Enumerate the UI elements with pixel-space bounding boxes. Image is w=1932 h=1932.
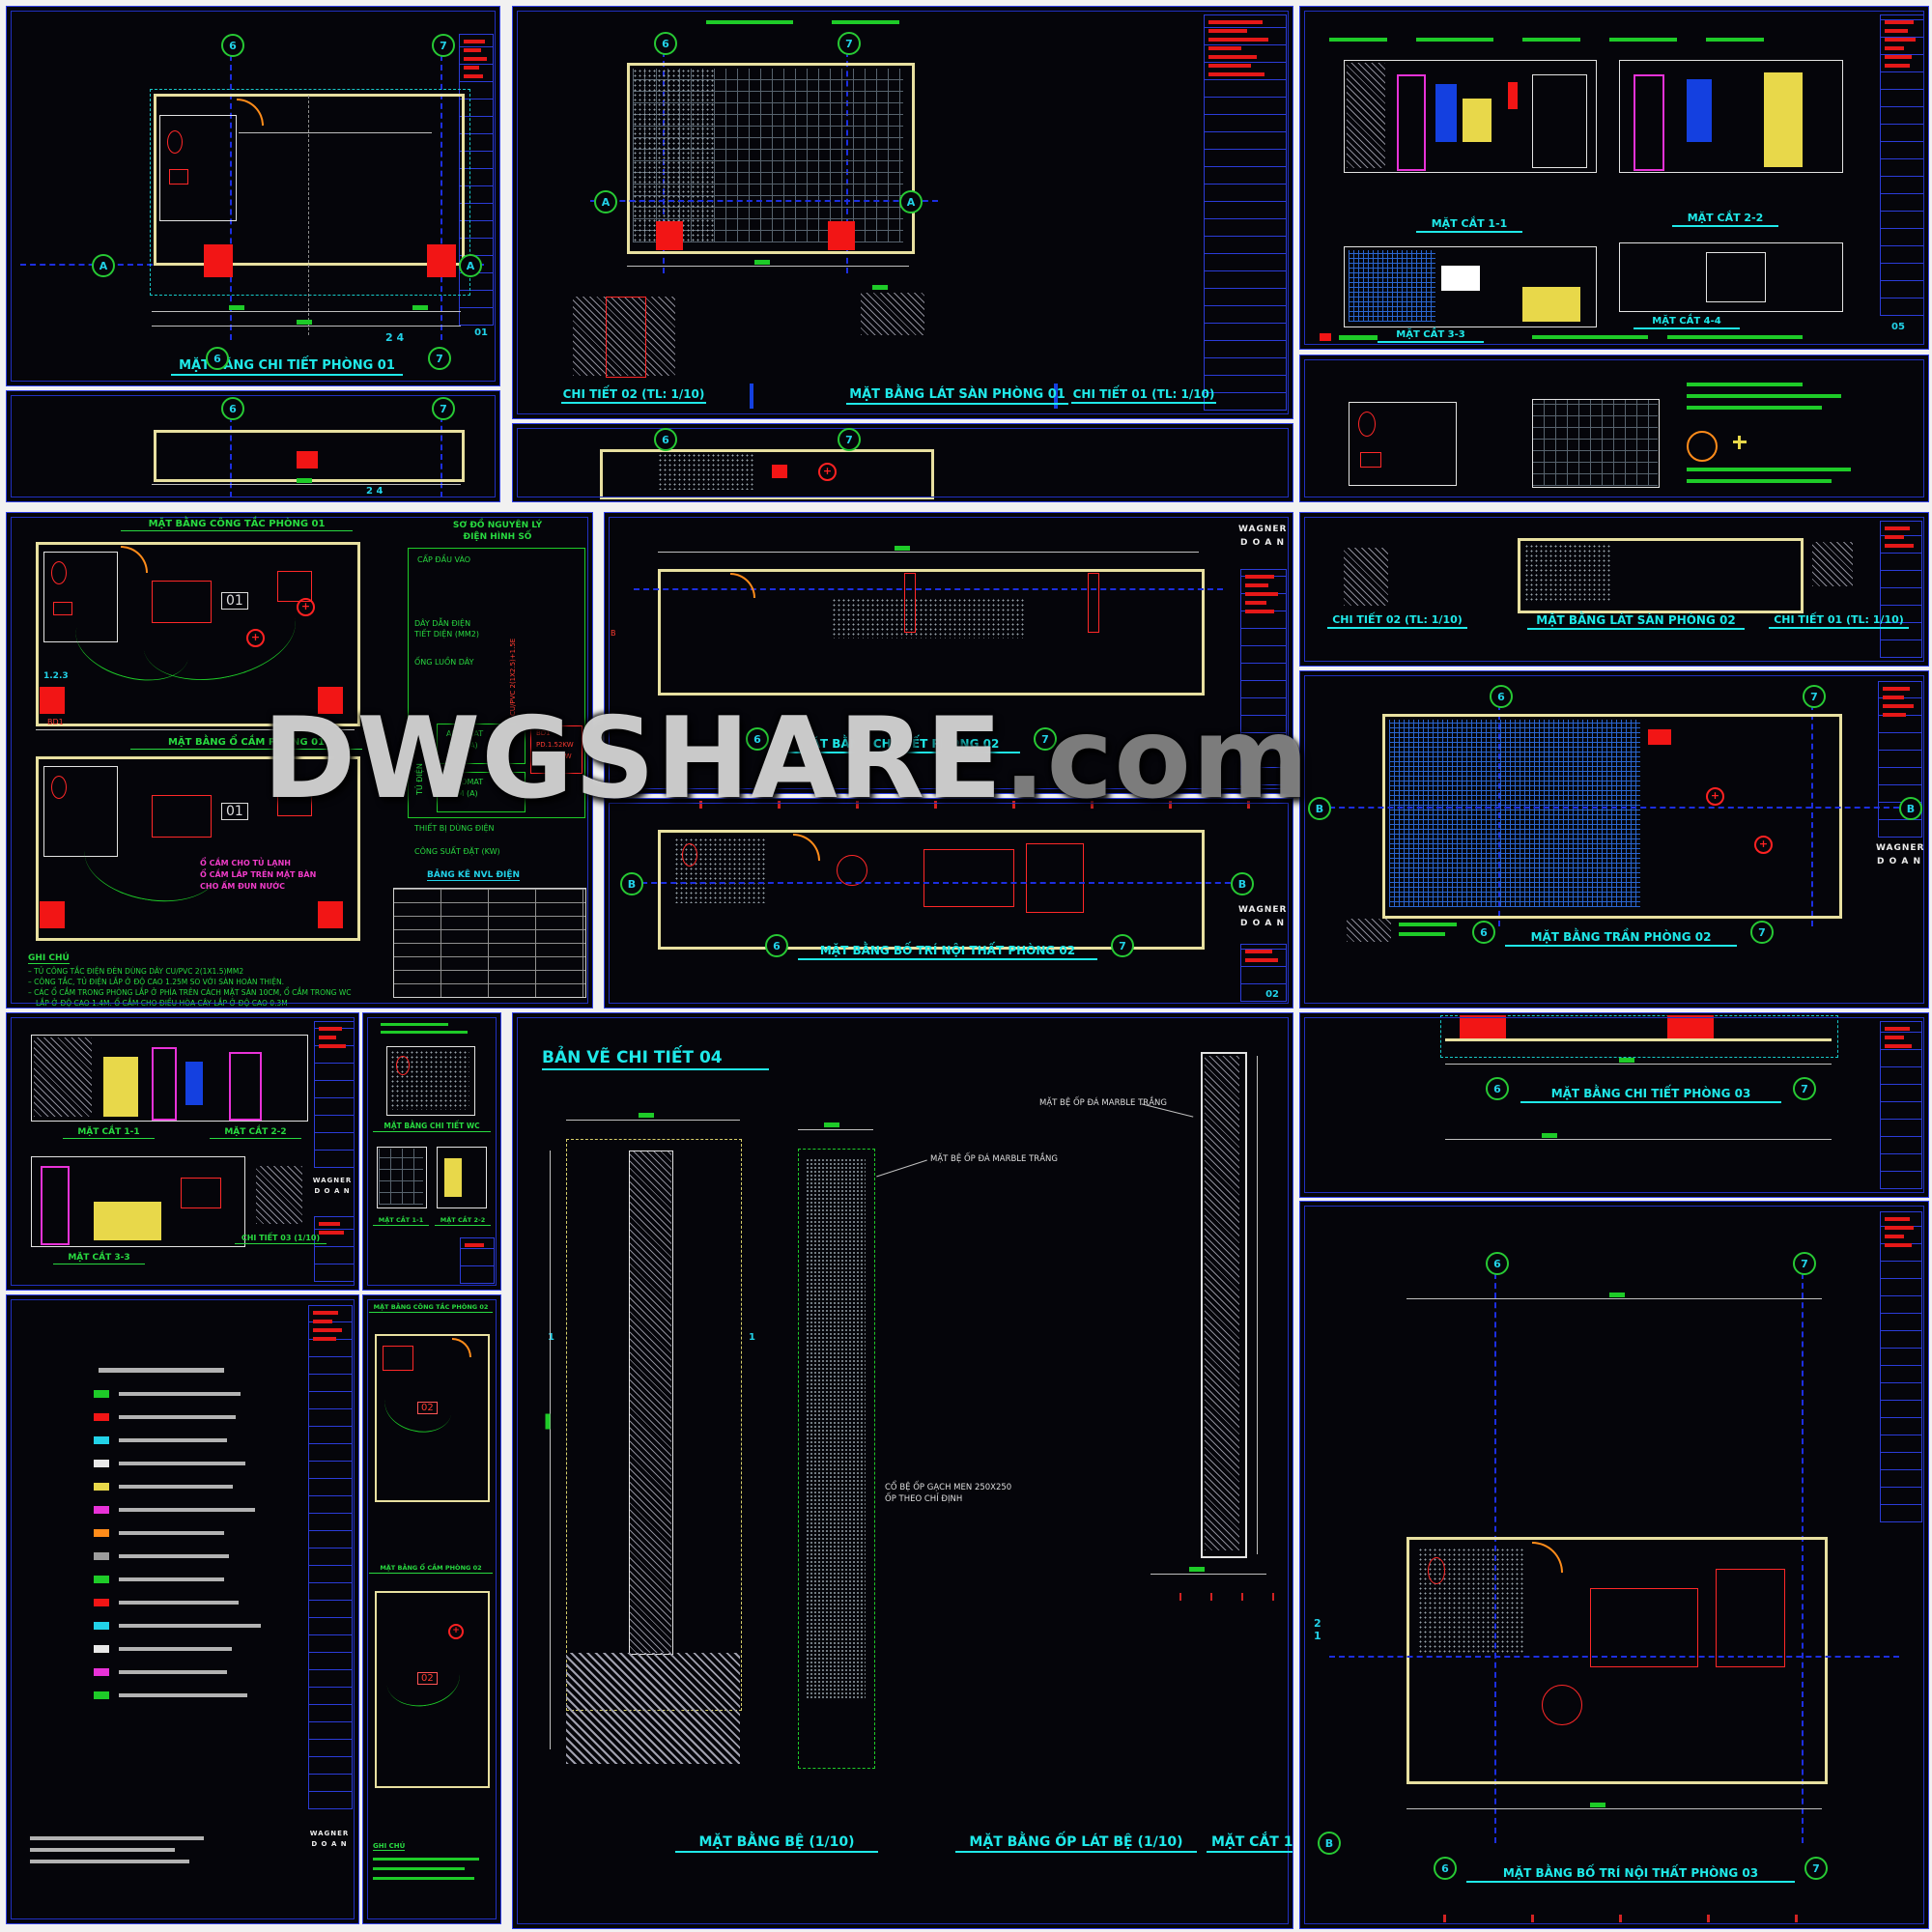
brand-sub: D O A N	[308, 1839, 351, 1850]
title-block	[308, 1305, 353, 1809]
leader-line	[876, 1160, 927, 1178]
note-bar	[1609, 38, 1677, 42]
legend-symbol-chip	[94, 1506, 109, 1514]
diagram-title-2: ĐIỆN HÌNH SỐ	[412, 532, 582, 542]
toilet-fixture	[1428, 1557, 1445, 1584]
grid-bubble-7: 7	[1803, 685, 1826, 708]
toilet-fixture	[51, 776, 67, 799]
legend-row	[94, 1429, 272, 1452]
grid-bubble-7: 7	[1804, 1857, 1828, 1880]
axis-bubble-a: A	[459, 254, 482, 277]
cad-collage: 01 6 7 A A 2 4 6 7 MẶT BẰNG CHI TIẾT PHÒ…	[0, 0, 1932, 1932]
title-block-text-bar	[1245, 592, 1278, 596]
legend-row	[94, 1498, 272, 1521]
title-block-text-bar	[313, 1311, 338, 1315]
socket-note-1: Ổ CẮM CHO TỦ LẠNH	[200, 859, 291, 867]
matcat-title: MẶT CẮT 1-1	[1207, 1834, 1293, 1853]
note-bar	[1687, 394, 1841, 398]
grid-bubble-6: 6	[654, 428, 677, 451]
sheet-electrical-phong02: MẶT BẰNG CÔNG TẮC PHÒNG 02 02 MẶT BẰNG Ổ…	[362, 1294, 501, 1924]
note-bar	[706, 20, 793, 24]
dim-line	[1445, 1139, 1832, 1140]
furniture	[383, 1346, 413, 1371]
title-block-text-bar	[1885, 1217, 1910, 1221]
dim-line	[152, 326, 461, 327]
legend-chip	[1320, 333, 1331, 341]
material-table	[393, 888, 586, 998]
latsan-title: MẶT BẰNG LÁT SÀN PHÒNG 01	[846, 387, 1068, 405]
dim-text	[546, 1414, 551, 1430]
sheet-number: 01	[474, 327, 488, 338]
circuit-label: 1.2.3	[43, 671, 69, 681]
brand-wagner: WAGNER D O A N	[308, 1829, 351, 1850]
dim-line-v	[1257, 1056, 1258, 1554]
title-block-text-bar	[464, 57, 487, 61]
dim-text	[1590, 1803, 1605, 1807]
cong-suat-label: CÔNG SUẤT ĐẶT (KW)	[414, 847, 500, 856]
title-block-text-bar	[313, 1320, 332, 1323]
detail01-title: CHI TIẾT 01 (TL: 1/10)	[1071, 387, 1216, 404]
window-elevation	[1706, 252, 1766, 302]
dim-line	[152, 484, 461, 485]
column-block	[1460, 1015, 1506, 1040]
legend-header-bar	[99, 1368, 224, 1373]
title-block-text-bar	[1885, 526, 1910, 530]
co-be-note: CỔ BỆ ỐP GẠCH MEN 250X250	[885, 1483, 1011, 1492]
bang-ke-title: BẢNG KÊ NVL ĐIỆN	[427, 870, 520, 881]
column-block	[427, 244, 456, 277]
grid-bubble-6: 6	[1486, 1077, 1509, 1100]
legend-text-bar	[119, 1415, 236, 1419]
matcat-2-2-title: MẶT CẮT 2-2	[210, 1127, 301, 1139]
title-block-text-bar	[464, 66, 479, 70]
note-bar	[30, 1836, 204, 1840]
note-bar	[1687, 383, 1803, 386]
matcat-4-4-title: MẶT CẮT 4-4	[1634, 316, 1740, 329]
dim-text	[895, 546, 910, 551]
cabinet-blue	[1687, 79, 1712, 142]
detail-03-drawing	[256, 1166, 302, 1224]
title-block-text-bar	[1885, 46, 1904, 50]
brand-name: WAGNER	[1238, 523, 1287, 536]
matcat-1-1-title: MẶT CẮT 1-1	[1416, 217, 1522, 233]
legend-text-bar	[119, 1577, 224, 1581]
room-label: 01	[221, 803, 248, 820]
title-block-text-bar	[1245, 950, 1272, 953]
title-block-text-bar	[1208, 55, 1257, 59]
note-bar	[30, 1848, 175, 1852]
margin-ticks	[1358, 1915, 1880, 1922]
legend-row	[94, 1661, 272, 1684]
legend-row	[94, 1521, 272, 1545]
thiet-bi-label: THIẾT BỊ DÙNG ĐIỆN	[414, 824, 494, 833]
legend-text-bar	[119, 1485, 233, 1489]
legend-bar	[1399, 923, 1457, 926]
diagram-title-1: SƠ ĐỒ NGUYÊN LÝ	[412, 521, 582, 530]
section-mark-24: 2 4	[385, 331, 404, 344]
legend-symbol-chip	[94, 1390, 109, 1398]
dim-text	[297, 320, 312, 325]
note-bar	[1416, 38, 1493, 42]
note-bar	[373, 1867, 465, 1870]
legend-text-bar	[119, 1601, 239, 1605]
grid-bubble-7: 7	[432, 34, 455, 57]
section-mark-1: 1	[749, 1332, 755, 1343]
grid-bubble-6: 6	[221, 397, 244, 420]
matcat-1-1-title: MẶT CẮT 1-1	[63, 1127, 155, 1139]
sheet-plan-phong01: 01 6 7 A A 2 4 6 7 MẶT BẰNG CHI TIẾT PHÒ…	[6, 6, 500, 386]
axis-bubble-b: B	[1318, 1832, 1341, 1855]
title-block-text-bar	[319, 1222, 340, 1226]
grid-bubble-6: 6	[1434, 1857, 1457, 1880]
desk-elevation	[181, 1178, 221, 1208]
dim-text	[824, 1122, 839, 1127]
legend-row	[94, 1545, 272, 1568]
bathroom-tiles	[658, 453, 754, 490]
title-block-text-bar	[1208, 38, 1268, 42]
section-mark-21: 2 1	[1314, 1617, 1321, 1642]
ceiling-light: +	[1754, 836, 1773, 854]
margin-letter-b: B	[611, 629, 616, 638]
bathroom-hatch	[832, 598, 1025, 639]
axis-bubble-b: B	[1231, 872, 1254, 895]
grid-bubble-6: 6	[206, 347, 229, 370]
grid-bubble-7: 7	[1750, 921, 1774, 944]
legend-row	[94, 1475, 272, 1498]
device-label: BD1	[47, 718, 64, 726]
title-block	[1204, 14, 1287, 411]
title-block-text-bar	[1885, 55, 1912, 59]
legend-text-bar	[119, 1670, 227, 1674]
legend-symbol-chip	[94, 1576, 109, 1583]
legend-symbol-chip	[94, 1645, 109, 1653]
ceiling-grid-hatch	[1389, 720, 1640, 907]
dim-text	[1619, 1058, 1634, 1063]
sheet-legend: WAGNER D O A N	[6, 1294, 359, 1924]
panel-hatch	[1349, 250, 1435, 322]
socket-note-2: Ổ CẮM LẮP TRÊN MẶT BÀN	[200, 870, 316, 879]
title-block-text-bar	[1245, 575, 1274, 579]
sheet-title: MẶT BẰNG TRẦN PHÒNG 02	[1505, 930, 1737, 947]
brand-name: WAGNER	[312, 1176, 353, 1186]
title-block-text-bar	[464, 40, 485, 43]
dim-line	[658, 552, 1199, 553]
brand-name: WAGNER	[1238, 903, 1287, 917]
sheet-title: MẶT BẰNG BỐ TRÍ NỘI THẤT PHÒNG 03	[1466, 1866, 1795, 1883]
vent-block	[1648, 729, 1671, 745]
title-block-text-bar	[1208, 64, 1251, 68]
title-block	[1880, 1211, 1922, 1522]
wall-line	[1445, 1038, 1832, 1041]
title-block-text-bar	[1883, 704, 1914, 708]
title-block-text-bar	[1885, 544, 1914, 548]
watermark-main: DWGSHARE	[263, 694, 1003, 824]
legend-symbol-chip	[94, 1529, 109, 1537]
note-bar	[1687, 479, 1832, 483]
sheet-chitiet-phong03: 6 MẶT BẰNG CHI TIẾT PHÒNG 03 7	[1299, 1012, 1929, 1198]
title-block-text-bar	[1245, 583, 1268, 587]
title-block	[1240, 944, 1287, 1002]
door-elevation	[1634, 74, 1664, 171]
dim-line	[1151, 1574, 1266, 1575]
brand-sub: D O A N	[312, 1186, 353, 1197]
dim-line	[1445, 1064, 1832, 1065]
grid-bubble-7: 7	[432, 397, 455, 420]
bed-furniture	[923, 849, 1014, 907]
legend-symbol-chip	[94, 1622, 109, 1630]
grid-bubble-7: 7	[428, 347, 451, 370]
title-block-text-bar	[1885, 29, 1908, 33]
sheet-matcat-small: MẶT CẮT 1-1 MẶT CẮT 2-2 MẶT CẮT 3-3 CHI …	[6, 1012, 359, 1291]
axis-bubble-b: B	[1899, 797, 1922, 820]
legend-symbol-chip	[94, 1483, 109, 1491]
matcat-3-3-title: MẶT CẮT 3-3	[53, 1253, 145, 1264]
grid-bubble-7: 7	[1111, 934, 1134, 957]
section-mark-2: 2	[1314, 1617, 1321, 1630]
wardrobe-furniture	[1026, 843, 1084, 913]
note-bar	[832, 20, 899, 24]
sheet-chitiet-04: BẢN VẼ CHI TIẾT 04 1 1 MẶT BỆ ỐP ĐÁ MARB…	[512, 1012, 1293, 1929]
section-bar-hatch	[1205, 1056, 1239, 1550]
title-block-lower	[314, 1216, 355, 1282]
column-block	[40, 901, 65, 928]
margin-ticks	[1151, 1593, 1276, 1601]
watermark: DWGSHARE.com	[263, 694, 1310, 824]
sheet-title: MẶT BẰNG CHI TIẾT PHÒNG 03	[1520, 1087, 1781, 1103]
curtain-hatch	[1347, 63, 1385, 168]
title-block	[1880, 14, 1924, 316]
axis-bubble-b: B	[620, 872, 643, 895]
room-label: 02	[417, 1402, 438, 1414]
dim-text	[639, 1113, 654, 1118]
title-block-text-bar	[1208, 72, 1264, 76]
column-block	[40, 687, 65, 714]
cap-dau-vao-label: CẤP ĐẦU VÀO	[417, 555, 470, 564]
chitiet-03-title: CHI TIẾT 03 (1/10)	[235, 1234, 327, 1244]
grid-bubble-6: 6	[654, 32, 677, 55]
dim-text	[1189, 1567, 1205, 1572]
plinth-bar-edge	[629, 1151, 673, 1655]
door-elevation	[41, 1166, 70, 1245]
centerline	[632, 882, 1250, 884]
sheet-wc-detail: MẶT BẰNG CHI TIẾT WC MẶT CẮT 1-1 MẶT CẮT…	[362, 1012, 501, 1291]
cabinet-yellow	[444, 1158, 462, 1197]
legend-text-bar	[119, 1554, 229, 1558]
tv-screen	[1441, 266, 1480, 291]
cabinet-blue	[1435, 84, 1457, 142]
symbol-circle	[1687, 431, 1718, 462]
legend-text-bar	[119, 1392, 241, 1396]
detail-01-drawing	[1812, 542, 1853, 586]
legend-bar	[1399, 932, 1445, 936]
center-dash	[308, 96, 309, 335]
legend-bar	[1339, 335, 1378, 340]
cabinet-yellow	[103, 1057, 138, 1117]
dim-line	[627, 266, 909, 267]
title-block-text-bar	[313, 1337, 336, 1341]
brand-wagner: WAGNER D O A N	[1876, 841, 1922, 869]
title-block-text-bar	[1885, 1044, 1912, 1048]
detail02-title: CHI TIẾT 02 (TL: 1/10)	[561, 387, 706, 404]
sheet-latsan-phong01: 6 7 A A CHI TIẾT 02 (TL: 1/10) MẶT BẰNG …	[512, 6, 1293, 419]
dim-text	[412, 305, 428, 310]
sheet-plan-phong01-crop: 6 7 2 4	[6, 390, 500, 502]
header-bar	[381, 1023, 448, 1026]
note-bar	[1687, 468, 1851, 471]
title-block-text-bar	[1883, 713, 1906, 717]
legend-row	[94, 1452, 272, 1475]
note-line-1: – TỦ CÔNG TẮC ĐIỆN ĐÈN DÙNG DÂY CU/PVC 2…	[28, 967, 243, 976]
grid-bubble-7: 7	[1793, 1077, 1816, 1100]
legend-symbol-chip	[94, 1599, 109, 1606]
wardrobe	[1532, 74, 1587, 168]
title-block	[314, 1021, 355, 1168]
centerline	[1329, 1656, 1899, 1658]
dim-text	[297, 478, 312, 483]
wardrobe-furniture	[1716, 1569, 1785, 1667]
plinth-base-hatch	[566, 1653, 740, 1764]
tiet-dien-label: TIẾT DIỆN (MM2)	[414, 630, 479, 639]
tiled-plan-border	[1532, 399, 1660, 488]
dim-text	[1542, 1133, 1557, 1138]
brand-wagner: WAGNER D O A N	[1238, 903, 1287, 931]
congtac-title: MẶT BẰNG CÔNG TẮC PHÒNG 01	[121, 519, 353, 531]
dim-line	[1406, 1298, 1822, 1299]
interior-line	[239, 132, 432, 133]
notes-heading: GHI CHÚ	[373, 1842, 405, 1851]
sheet-strip-plan: 6 7 +	[512, 423, 1293, 502]
title-block-text-bar	[1885, 1243, 1912, 1247]
legend-row	[94, 1406, 272, 1429]
sheet-title: MẶT BẰNG BỐ TRÍ NỘI THẤT PHÒNG 02	[798, 944, 1097, 960]
brand-wagner: WAGNER D O A N	[312, 1176, 353, 1197]
title-block-text-bar	[1885, 1226, 1914, 1230]
title-block-text-bar	[1208, 20, 1263, 24]
matcat-1-1-title: MẶT CẮT 1-1	[373, 1216, 429, 1226]
title-block-text-bar	[1885, 38, 1916, 42]
legend-rows	[94, 1382, 272, 1707]
bed-elevation	[1522, 287, 1580, 322]
wc-title: MẶT BẰNG CHI TIẾT WC	[373, 1122, 491, 1132]
note-bar	[1522, 38, 1580, 42]
column-block	[1667, 1015, 1714, 1040]
table-furniture	[1542, 1685, 1582, 1725]
centerline	[634, 588, 1223, 590]
day-dan-label: DÂY DẪN ĐIỆN	[414, 619, 470, 628]
fixture	[772, 465, 787, 478]
legend-row	[94, 1382, 272, 1406]
legend-symbol-chip	[94, 1552, 109, 1560]
legend-text-bar	[119, 1624, 261, 1628]
note-line-2: – CÔNG TẮC, TỦ ĐIỆN LẮP Ở ĐỘ CAO 1.25M S…	[28, 978, 284, 986]
title-block-text-bar	[319, 1027, 342, 1031]
dim-line	[798, 1129, 873, 1130]
sheet-matcat-phong: 05 MẶT CẮT 1-1 MẶT CẮT 2-2 MẶT CẮT 3-3 M…	[1299, 6, 1929, 350]
watermark-suffix: .com	[1003, 694, 1309, 824]
toilet-fixture	[396, 1056, 410, 1075]
notes-heading: GHI CHÚ	[28, 953, 70, 964]
brand-name: WAGNER	[1876, 841, 1922, 855]
title-block	[1880, 1021, 1922, 1189]
legend-text-bar	[119, 1647, 232, 1651]
matcat-2-2-title: MẶT CẮT 2-2	[1672, 212, 1778, 227]
symbol-cross-v	[1738, 436, 1741, 449]
title-block-text-bar	[1885, 1027, 1910, 1031]
light-symbol: +	[818, 463, 837, 481]
axis-bubble-a: A	[594, 190, 617, 213]
title-block-text-bar	[1885, 1036, 1904, 1039]
sheet-tran-phong02: 6 7 + + B B 6 MẶT BẰNG TRẦN PHÒNG 02 7 W…	[1299, 670, 1929, 1009]
door-elevation	[1397, 74, 1426, 171]
dim-text	[1609, 1293, 1625, 1297]
dim-text	[229, 305, 244, 310]
legend-row	[94, 1684, 272, 1707]
legend-sample	[1347, 919, 1391, 942]
marble-note-2: MẶT BỆ ỐP ĐÁ MARBLE TRẮNG	[1039, 1098, 1167, 1108]
legend-text-bar	[119, 1531, 224, 1535]
grid-bubble-6: 6	[1486, 1252, 1509, 1275]
red-partition	[904, 573, 916, 633]
title-block-text-bar	[319, 1044, 346, 1048]
title-block	[1880, 521, 1922, 658]
title-block-text-bar	[1885, 535, 1904, 539]
detail-01-drawing	[861, 293, 924, 335]
sheet-wc-plans	[1299, 355, 1929, 502]
dim-text	[872, 285, 888, 290]
title-block-text-bar	[1883, 687, 1910, 691]
sheet-noithat-phong02: B B 6 MẶT BẰNG BỐ TRÍ NỘI THẤT PHÒNG 02 …	[604, 798, 1293, 1009]
column-block	[204, 244, 233, 277]
room-label: 01	[221, 592, 248, 610]
legend-text-bar	[119, 1508, 255, 1512]
bathroom-tiles	[633, 69, 716, 242]
toilet-fixture	[682, 843, 697, 867]
room-label: 02	[417, 1672, 438, 1685]
title-block-text-bar	[1883, 696, 1904, 699]
legend-symbol-chip	[94, 1668, 109, 1676]
sheet-latsan-phong02: CHI TIẾT 02 (TL: 1/10) MẶT BẰNG LÁT SÀN …	[1299, 512, 1929, 667]
dim-line-v	[550, 1151, 551, 1749]
grid-bubble-6: 6	[1472, 921, 1495, 944]
legend-symbol-chip	[94, 1460, 109, 1467]
brand-sub: D O A N	[1238, 536, 1287, 550]
oplat-title: MẶT BẰNG ỐP LÁT BỆ (1/10)	[955, 1834, 1197, 1853]
note-bar	[1706, 38, 1764, 42]
legend-symbol-chip	[94, 1436, 109, 1444]
detail02-title: CHI TIẾT 02 (TL: 1/10)	[1327, 613, 1467, 629]
socket-note-3: CHO ẤM ĐUN NƯỚC	[200, 882, 285, 891]
title-block-text-bar	[1245, 601, 1266, 605]
header-bar	[381, 1031, 468, 1034]
note-bar	[1532, 335, 1648, 339]
column-block	[656, 221, 683, 250]
axis-line-a	[590, 200, 938, 202]
sheet-noithat-phong03: 6 7 2 1 B 6 MẶT BẰNG BỐ TRÍ NỘI THẤT PHÒ…	[1299, 1201, 1929, 1929]
legend-symbol-chip	[94, 1413, 109, 1421]
title-block-text-bar	[1245, 610, 1274, 613]
note-bar	[1687, 406, 1822, 410]
sink-fixture	[53, 602, 72, 615]
matcat-2-2-title: MẶT CẮT 2-2	[435, 1216, 491, 1226]
red-partition	[1088, 573, 1099, 633]
dim-line	[1406, 1808, 1822, 1809]
title-block-text-bar	[464, 74, 483, 78]
note-bar	[1329, 38, 1387, 42]
note-bar	[1667, 335, 1803, 339]
title-block-text-bar	[1885, 20, 1914, 24]
congtac-02-title: MẶT BẰNG CÔNG TẮC PHÒNG 02	[369, 1303, 493, 1313]
note-bar	[373, 1877, 474, 1880]
